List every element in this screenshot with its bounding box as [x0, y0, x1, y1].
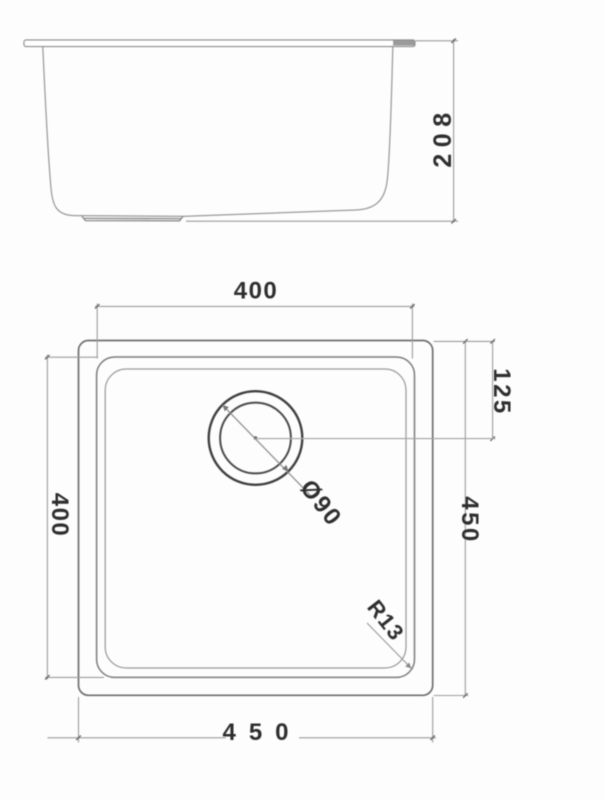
svg-text:450: 450 [456, 496, 483, 544]
svg-text:400: 400 [46, 493, 73, 538]
svg-text:208: 208 [429, 106, 457, 167]
svg-text:400: 400 [234, 278, 279, 305]
svg-text:125: 125 [488, 368, 515, 416]
svg-text:450: 450 [222, 719, 301, 746]
